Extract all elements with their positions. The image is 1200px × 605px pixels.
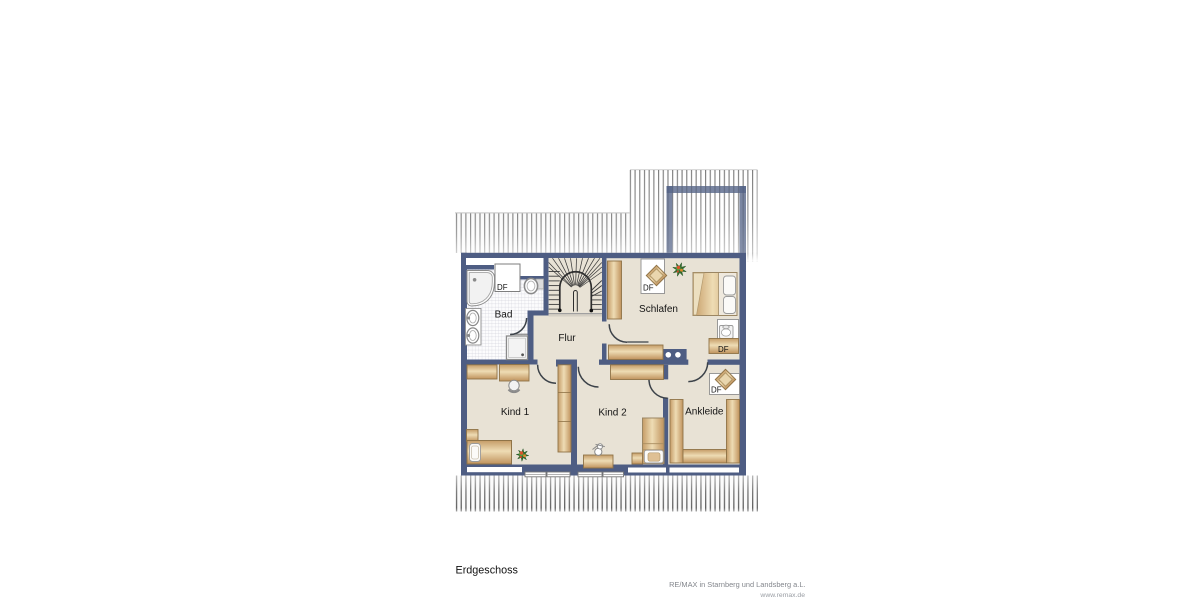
svg-text:Schlafen: Schlafen <box>639 304 678 315</box>
svg-text:Flur: Flur <box>558 333 576 344</box>
svg-text:DF: DF <box>711 386 722 395</box>
svg-text:Ankleide: Ankleide <box>685 406 724 417</box>
svg-text:DF: DF <box>718 345 729 354</box>
svg-text:DF: DF <box>497 283 508 292</box>
svg-text:RE/MAX in Starnberg und Landsb: RE/MAX in Starnberg und Landsberg a.L. <box>669 580 805 589</box>
svg-text:www.remax.de: www.remax.de <box>759 592 805 599</box>
svg-text:DF: DF <box>643 284 654 293</box>
svg-text:Kind 2: Kind 2 <box>598 408 627 419</box>
svg-text:Kind 1: Kind 1 <box>501 407 530 418</box>
svg-text:Bad: Bad <box>495 309 513 320</box>
svg-text:Erdgeschoss: Erdgeschoss <box>456 564 519 576</box>
